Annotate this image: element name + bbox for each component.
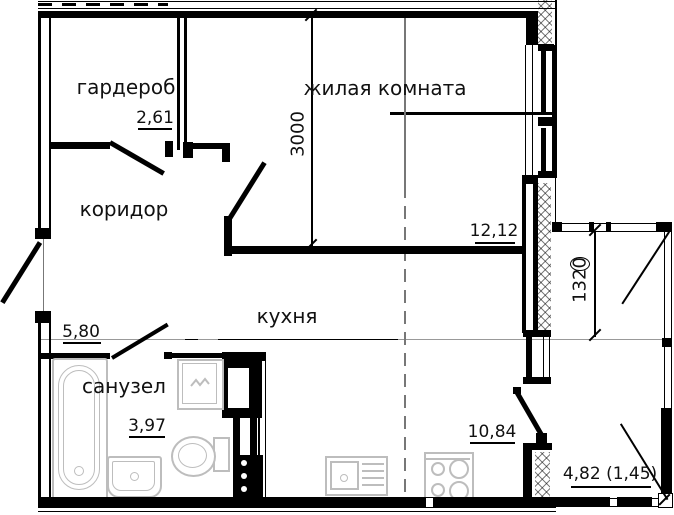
kitchen-window-line-a	[543, 337, 544, 377]
room-area-wardrobe: 2,61	[136, 108, 174, 128]
entry-jamb-bottom	[35, 311, 51, 323]
bathtub-drain	[74, 466, 84, 476]
top-wall-dashes	[38, 3, 168, 6]
bottom-wall	[38, 497, 556, 508]
living-window-glass-b	[541, 128, 546, 172]
room-area-kitchen: 10,84	[468, 422, 517, 442]
living-door-leaf	[227, 161, 267, 220]
burner-2	[449, 459, 469, 479]
drainer-line-2	[362, 470, 384, 472]
right-wall-pier	[526, 13, 538, 45]
boundary-dash	[185, 339, 198, 341]
balcony-top-block-3	[606, 222, 611, 232]
balcony-top-line-b	[552, 231, 672, 232]
kitchen-sink-drain	[340, 474, 348, 482]
living-window-inner-line-b	[532, 45, 533, 175]
drainer-line-3	[362, 477, 384, 479]
right-wall-cap-lower	[523, 443, 552, 450]
toilet-bowl-inner	[178, 443, 207, 468]
kitchen-label-underline	[218, 339, 398, 341]
right-wall-bar-lower	[523, 450, 532, 498]
room-label-kitchen: кухня	[257, 304, 318, 328]
entrance-door-leaf	[0, 241, 42, 304]
kitchen-window-cap-top	[523, 330, 551, 337]
burner-1	[431, 462, 445, 476]
left-wall-upper	[38, 11, 41, 238]
vent-shaft-bar-b	[250, 418, 257, 455]
wardrobe-bottom-wall	[50, 142, 110, 149]
living-window-glass-a	[541, 50, 546, 114]
left-wall-lower	[38, 323, 41, 498]
room-area-living: 12,12	[470, 221, 519, 241]
balcony-top-line-a	[552, 223, 672, 224]
bath-kitchen-wall-a	[258, 352, 260, 498]
shaft-hole-3	[241, 486, 247, 492]
entry-jamb-top	[35, 228, 51, 239]
kitchen-window-glass	[526, 337, 532, 377]
balcony-bottom-block-2	[617, 497, 652, 507]
bathroom-sink-drain	[130, 472, 139, 481]
floor-plan: гардероб 2,61 жилая комната 12,12 коридо…	[0, 0, 674, 515]
underline-living-area	[475, 242, 515, 244]
right-wall-bar-a	[522, 175, 526, 333]
right-wall-hatch-mid	[538, 183, 551, 331]
underline-wardrobe-area	[138, 128, 172, 130]
room-label-living: жилая комната	[303, 76, 466, 100]
wardrobe-door-leaf	[109, 140, 165, 175]
washing-machine-icon	[190, 377, 210, 389]
balcony-door-leaf	[515, 391, 545, 439]
wardrobe-right-wall-b	[184, 15, 187, 150]
dim-1320-line	[594, 232, 596, 337]
kitchen-window-line-b	[549, 337, 550, 377]
vent-shaft-slot	[228, 368, 249, 408]
bath-kitchen-wall-b	[265, 352, 267, 498]
living-zone-line	[390, 112, 552, 115]
right-wall-outer-top	[555, 0, 557, 46]
bottom-wall-outer-line	[38, 511, 556, 512]
axis-line-solid	[404, 18, 406, 185]
vent-shaft-bar-a	[233, 418, 240, 455]
right-wall-hatch-top	[538, 0, 552, 46]
bathroom-door-leaf	[111, 323, 169, 360]
burner-3	[431, 483, 445, 497]
dim-3000-label: 3000	[288, 111, 309, 157]
balcony-top-block-1	[552, 222, 562, 232]
drainer-line-4	[362, 484, 384, 486]
shaft-hole-2	[241, 473, 247, 479]
niche-hook	[222, 148, 230, 162]
dim-3000-line	[311, 17, 313, 247]
room-label-corridor: коридор	[80, 197, 169, 221]
balcony-glazing-block-1	[662, 224, 672, 231]
room-area-corridor: 5,80	[62, 322, 100, 342]
room-area-bathroom: 3,97	[128, 416, 166, 436]
wardrobe-right-wall-a	[177, 15, 180, 150]
entry-threshold-line	[43, 239, 44, 311]
top-wall	[38, 11, 538, 18]
underline-balcony-area	[571, 486, 651, 488]
right-wall-hatch-bottom	[535, 452, 550, 498]
room-label-wardrobe: гардероб	[77, 75, 176, 99]
balcony-area: 4,82 (1,45)	[563, 464, 657, 484]
living-bottom-wall	[224, 246, 524, 254]
underline-corridor-area	[63, 342, 101, 344]
bottom-wall-slit	[426, 498, 433, 507]
underline-kitchen-area	[470, 442, 515, 444]
axis-line-dashed	[404, 185, 406, 497]
kitchen-window-cap-bottom	[523, 377, 551, 384]
dim-1320-label: 1320	[570, 257, 591, 303]
living-window-outer-frame	[552, 45, 557, 178]
bath-top-wall-right	[168, 353, 226, 358]
wardrobe-door-jamb	[165, 141, 173, 157]
drainer-line-1	[362, 463, 384, 465]
right-wall-outer-mid	[555, 178, 556, 223]
balcony-glazing-block-3	[661, 408, 671, 495]
underline-bathroom-area	[129, 436, 165, 438]
balcony-glazing-block-2	[662, 338, 672, 347]
right-wall-cap	[522, 175, 538, 184]
living-window-inner-line-a	[525, 45, 526, 175]
balcony-door-tip	[513, 387, 521, 394]
shaft-hole-1	[241, 460, 247, 466]
room-label-bathroom: санузел	[82, 374, 166, 398]
top-wall-mid-line	[38, 8, 556, 9]
left-wall-lower-inner	[49, 323, 51, 498]
balcony-bottom-block-1	[556, 497, 610, 507]
balcony-window-diagonal-top	[621, 231, 669, 304]
left-wall-upper-inner	[49, 17, 51, 238]
top-wall-outer-line	[38, 1, 556, 2]
